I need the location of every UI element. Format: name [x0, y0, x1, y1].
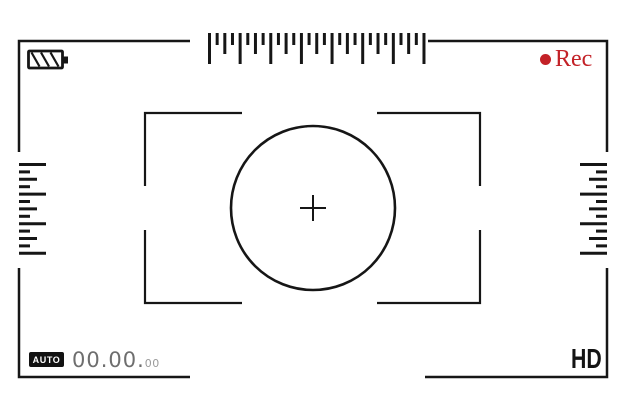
timecode-frames: 00: [145, 357, 160, 370]
hd-quality-label: HD: [571, 343, 602, 375]
battery-icon: [29, 51, 69, 68]
focus-bracket-right-bottom: [377, 230, 480, 303]
timecode: 00.00. 00: [72, 348, 160, 372]
camera-viewfinder: Rec AUTO 00.00. 00 HD: [0, 0, 626, 418]
focus-bracket-left-top: [145, 113, 242, 186]
timecode-main: 00.00.: [72, 348, 145, 372]
record-dot-icon: [540, 54, 551, 65]
rec-indicator: Rec: [540, 47, 592, 71]
level-ruler-left: [19, 165, 46, 254]
crosshair-icon: [300, 195, 326, 221]
exposure-ruler-top: [210, 33, 424, 64]
rec-label: Rec: [555, 47, 592, 71]
focus-bracket-left-bottom: [145, 230, 242, 303]
focus-bracket-right-top: [377, 113, 480, 186]
level-ruler-right: [580, 165, 607, 254]
auto-mode-badge: AUTO: [29, 352, 64, 367]
